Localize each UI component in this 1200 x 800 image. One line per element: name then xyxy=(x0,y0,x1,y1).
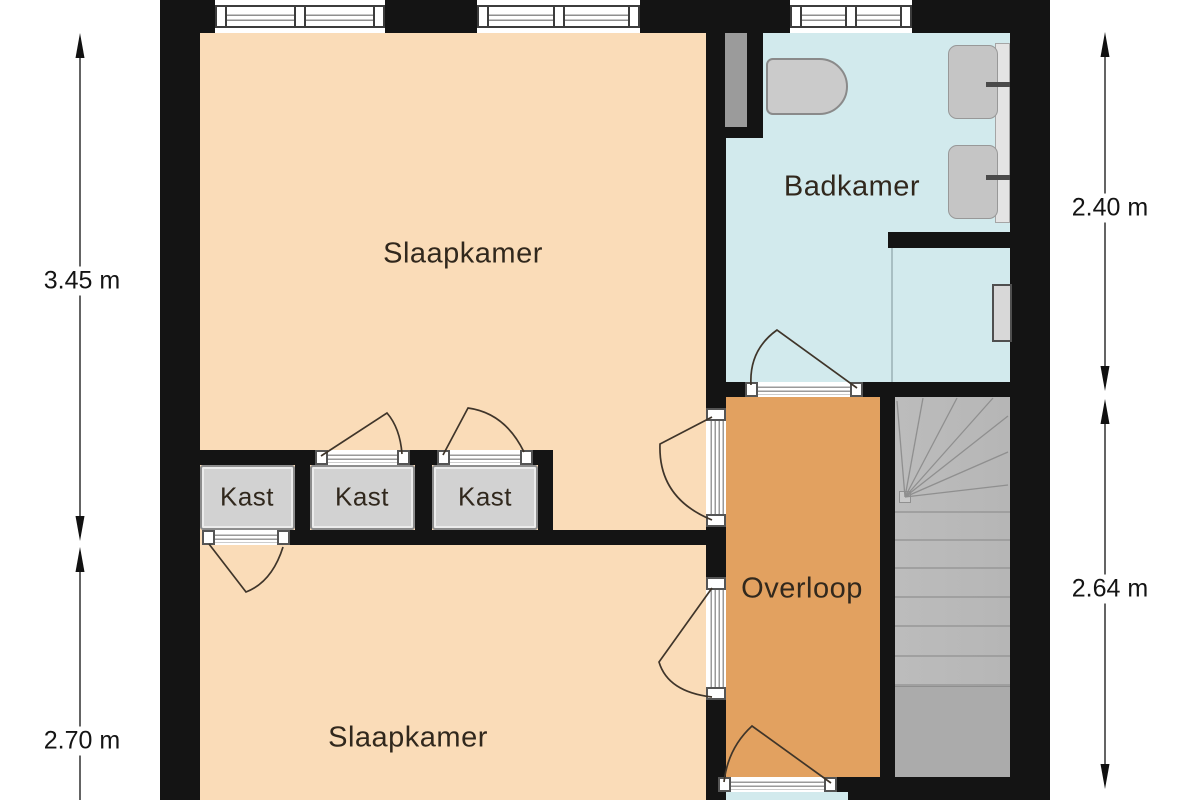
door-jamb xyxy=(718,777,731,792)
window-mullion xyxy=(294,5,306,28)
wc-partition-line xyxy=(891,248,893,382)
window-mullion xyxy=(215,5,227,28)
room-below-landing-sliver xyxy=(712,792,848,800)
dimension-left-lower: 2.70 m xyxy=(39,727,125,756)
window-bedroom-top-2 xyxy=(477,5,640,28)
wall-bottom-under-a xyxy=(706,792,712,800)
room-label-closet-3: Kast xyxy=(458,482,512,513)
wall-bathroom-bottom-right xyxy=(863,382,1010,397)
wall-wc-stub xyxy=(888,232,1010,248)
window-bedroom-top-1 xyxy=(215,5,385,28)
wc-sink xyxy=(992,284,1012,342)
door-jamb xyxy=(202,530,215,545)
wall-landing-stairs xyxy=(880,397,895,777)
room-label-closet-1: Kast xyxy=(220,482,274,513)
stairs-lower-flight xyxy=(895,686,1010,777)
wall-outer-left xyxy=(160,0,200,800)
room-label-bedroom-bottom: Slaapkamer xyxy=(328,722,488,755)
faucet-2 xyxy=(986,175,1010,180)
dimension-right-lower: 2.64 m xyxy=(1067,575,1153,604)
door-closet-1 xyxy=(202,530,290,545)
door-jamb xyxy=(397,450,410,465)
wall-top-mid-1 xyxy=(385,0,477,33)
door-leaf-rails xyxy=(214,532,278,543)
room-label-bedroom-top: Slaapkamer xyxy=(383,238,543,271)
door-jamb xyxy=(706,408,726,421)
door-jamb xyxy=(520,450,533,465)
room-label-bathroom: Badkamer xyxy=(784,171,920,204)
door-jamb xyxy=(745,382,758,397)
door-bathroom xyxy=(745,382,863,397)
door-jamb xyxy=(315,450,328,465)
window-mullion xyxy=(373,5,385,28)
dimension-right-upper: 2.40 m xyxy=(1067,194,1153,223)
faucet-1 xyxy=(986,82,1010,87)
door-closet-2 xyxy=(315,450,410,465)
room-label-closet-2: Kast xyxy=(335,482,389,513)
door-jamb xyxy=(437,450,450,465)
window-mullion xyxy=(790,5,802,28)
room-label-landing: Overloop xyxy=(741,573,863,606)
stairs-winder-pivot xyxy=(899,491,911,503)
window-bathroom xyxy=(790,5,912,28)
dimension-left-upper: 3.45 m xyxy=(39,267,125,296)
door-jamb xyxy=(277,530,290,545)
door-leaf-rails xyxy=(708,420,724,515)
wall-bottom-left xyxy=(706,777,718,792)
door-bedroom-top xyxy=(706,408,726,527)
window-mullion xyxy=(845,5,857,28)
window-mullion xyxy=(628,5,640,28)
wall-bottom-under-b xyxy=(848,792,1050,800)
door-leaf-rails xyxy=(449,452,521,463)
door-closet-3 xyxy=(437,450,533,465)
door-jamb xyxy=(706,577,726,590)
toilet xyxy=(766,58,848,115)
wall-bottom-right xyxy=(837,777,1050,792)
floor-plan: Slaapkamer Slaapkamer Badkamer Overloop … xyxy=(0,0,1200,800)
door-jamb xyxy=(706,687,726,700)
door-leaf-rails xyxy=(708,589,724,688)
window-mullion xyxy=(477,5,489,28)
door-landing-bottom xyxy=(718,777,837,792)
door-bedroom-bottom xyxy=(706,577,726,700)
room-bedroom-bottom xyxy=(200,545,706,800)
door-leaf-rails xyxy=(730,779,825,790)
door-leaf-rails xyxy=(327,452,398,463)
wall-bathroom-bottom-left xyxy=(706,382,745,397)
window-mullion xyxy=(900,5,912,28)
wall-closet-bottom xyxy=(290,530,706,545)
door-jamb xyxy=(706,514,726,527)
door-leaf-rails xyxy=(757,384,851,395)
door-jamb xyxy=(850,382,863,397)
duct-shaft xyxy=(725,33,747,127)
washbasin-2 xyxy=(948,145,998,219)
wall-spine-mid xyxy=(706,527,726,577)
door-jamb xyxy=(824,777,837,792)
window-mullion xyxy=(553,5,565,28)
wall-outer-right xyxy=(1010,0,1050,800)
